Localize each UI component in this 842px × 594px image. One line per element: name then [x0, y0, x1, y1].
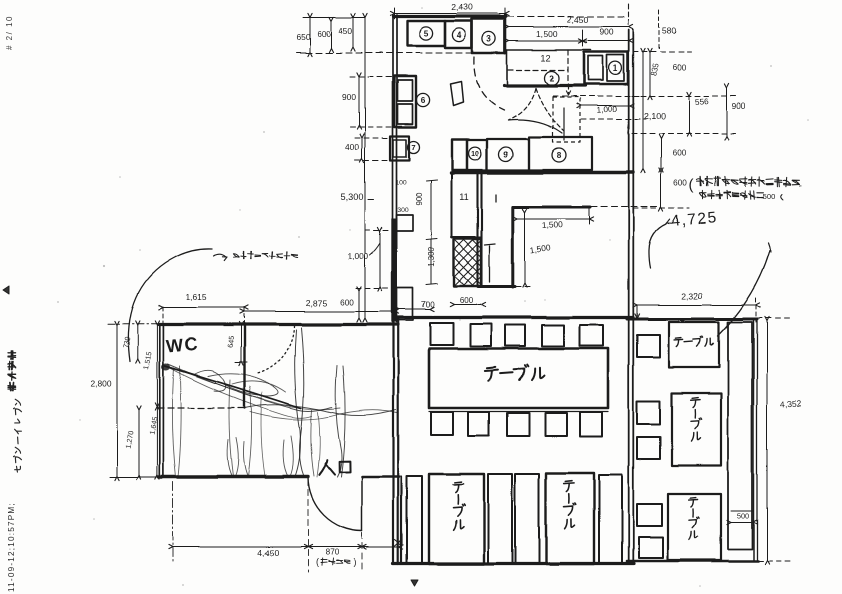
svg-text:600: 600	[340, 298, 354, 307]
svg-text:11-09-12;10:57PM;: 11-09-12;10:57PM;	[7, 502, 16, 592]
svg-text:580: 580	[662, 26, 677, 36]
svg-text:8: 8	[557, 151, 562, 160]
svg-text:7: 7	[411, 143, 415, 152]
svg-text:): )	[354, 557, 357, 567]
svg-text:870: 870	[325, 548, 339, 557]
svg-text:600: 600	[672, 63, 686, 72]
svg-text:900: 900	[600, 27, 614, 37]
svg-text:(: (	[316, 557, 319, 567]
svg-text:4,450: 4,450	[257, 548, 279, 558]
svg-text:1,500: 1,500	[542, 219, 564, 230]
svg-text:12: 12	[541, 53, 551, 63]
svg-text:500: 500	[737, 511, 749, 520]
svg-text:5,300: 5,300	[341, 192, 364, 202]
svg-text:11: 11	[459, 192, 469, 202]
svg-text:300: 300	[397, 207, 409, 214]
svg-text:2,100: 2,100	[644, 111, 666, 121]
svg-text:900: 900	[342, 92, 356, 102]
svg-text:# 2/ 10: # 2/ 10	[5, 15, 14, 50]
svg-text:2: 2	[550, 74, 555, 83]
svg-text:4,352: 4,352	[780, 398, 802, 409]
svg-text:1,000: 1,000	[348, 251, 369, 261]
svg-text:1,615: 1,615	[186, 292, 207, 302]
svg-text:1: 1	[613, 64, 618, 73]
svg-text:900: 900	[415, 192, 424, 206]
svg-text:400: 400	[345, 142, 359, 152]
svg-text:100: 100	[395, 179, 407, 186]
svg-text:。: 。	[800, 181, 807, 188]
svg-text:2,320: 2,320	[681, 291, 703, 301]
svg-text:4: 4	[457, 31, 462, 40]
svg-text:600: 600	[459, 296, 473, 305]
svg-text:9: 9	[504, 150, 509, 159]
svg-text:450: 450	[338, 26, 352, 36]
svg-text:556: 556	[695, 97, 710, 107]
svg-text:2,875: 2,875	[305, 298, 327, 308]
svg-text:900: 900	[732, 102, 746, 111]
svg-text:500: 500	[763, 192, 776, 201]
svg-text:600: 600	[317, 30, 331, 39]
svg-text:(: (	[689, 177, 694, 194]
svg-text:5: 5	[424, 29, 429, 38]
svg-text:10: 10	[471, 151, 479, 158]
svg-text:1,500: 1,500	[537, 29, 558, 39]
svg-text:600: 600	[673, 179, 687, 188]
svg-text:3: 3	[487, 34, 492, 43]
svg-text:645: 645	[226, 335, 236, 348]
svg-text:2,430: 2,430	[451, 2, 473, 12]
svg-text:1,300: 1,300	[427, 247, 436, 267]
svg-text:WC: WC	[165, 334, 200, 357]
svg-text:6: 6	[421, 96, 426, 105]
svg-text:600: 600	[672, 149, 686, 158]
svg-text:2,800: 2,800	[91, 379, 112, 389]
svg-text:650: 650	[296, 32, 310, 42]
